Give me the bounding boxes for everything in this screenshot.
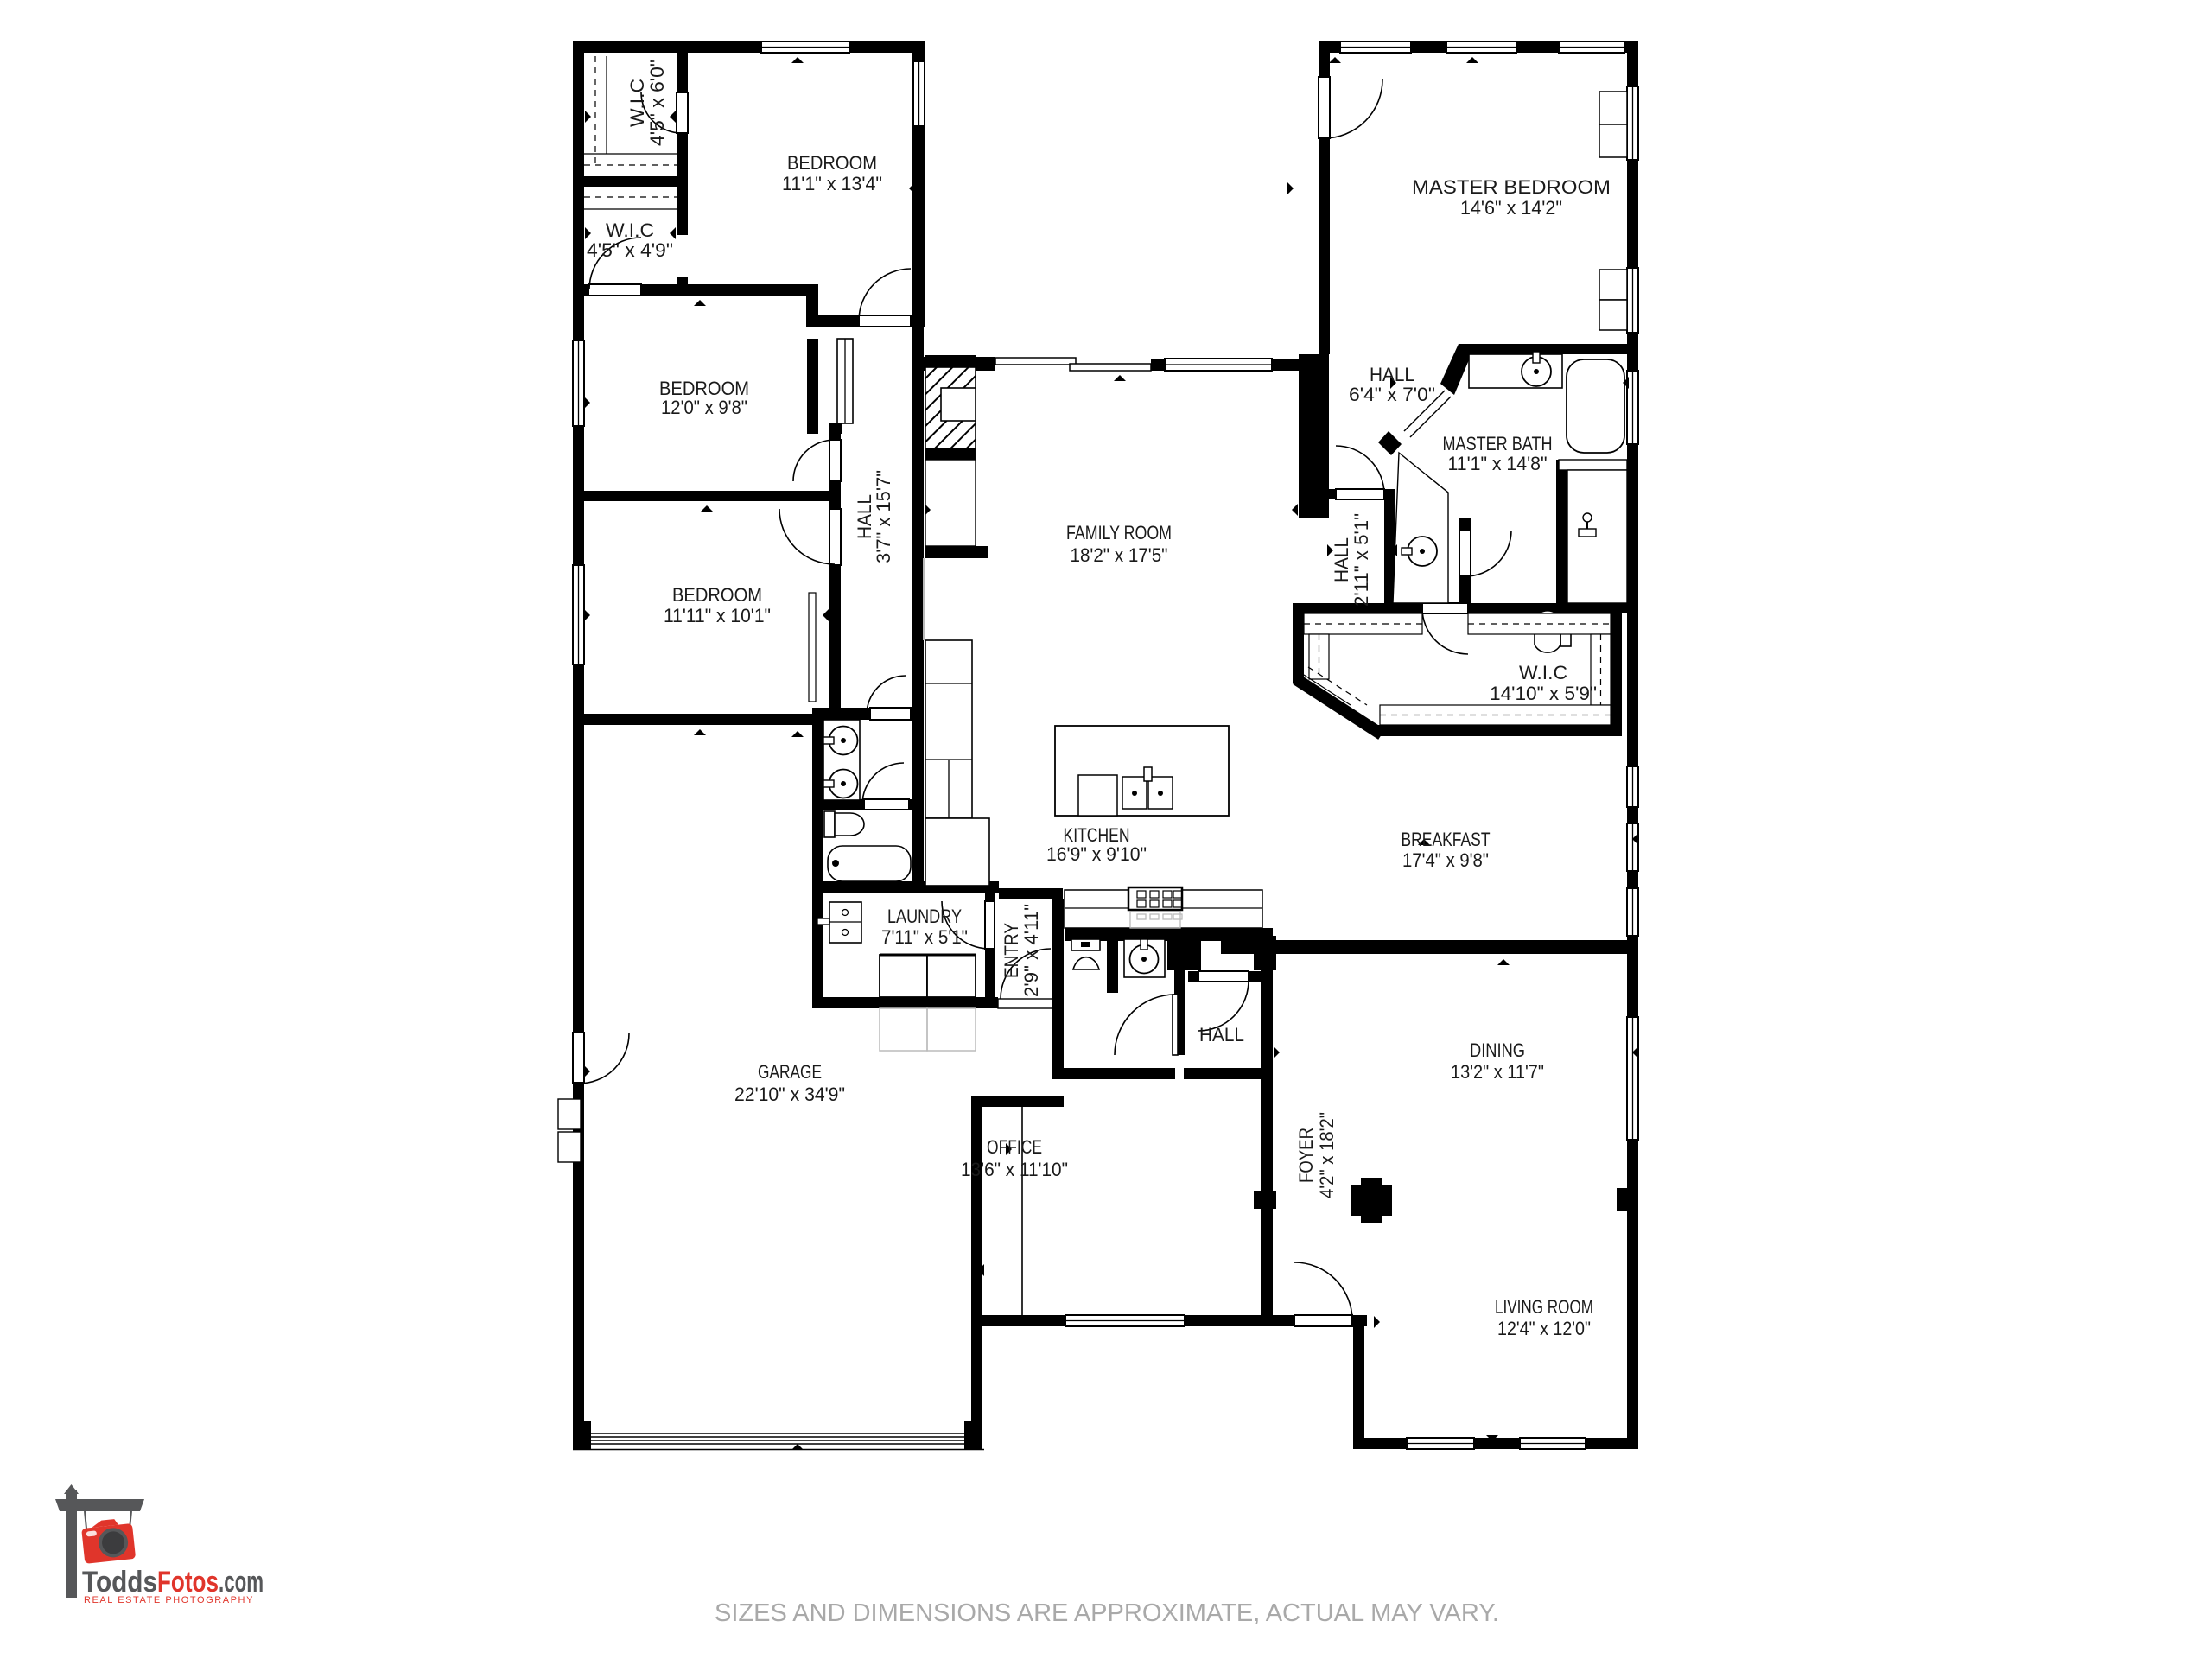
svg-text:ENTRY: ENTRY: [1001, 923, 1022, 978]
svg-text:BEDROOM: BEDROOM: [787, 152, 877, 174]
svg-text:11'1" x 14'8": 11'1" x 14'8": [1448, 453, 1548, 474]
svg-text:SIZES AND DIMENSIONS ARE APPRO: SIZES AND DIMENSIONS ARE APPROXIMATE, AC…: [715, 1599, 1499, 1627]
svg-text:W.I.C: W.I.C: [606, 219, 654, 241]
svg-text:14'10" x 5'9": 14'10" x 5'9": [1490, 683, 1597, 704]
svg-text:18'2" x 17'5": 18'2" x 17'5": [1071, 544, 1168, 566]
svg-text:FOYER: FOYER: [1295, 1128, 1317, 1183]
svg-text:HALL: HALL: [1331, 537, 1352, 582]
svg-text:22'10" x 34'9": 22'10" x 34'9": [734, 1084, 845, 1105]
svg-text:LIVING ROOM: LIVING ROOM: [1495, 1296, 1593, 1318]
svg-text:Fotos: Fotos: [157, 1566, 219, 1599]
svg-text:LAUNDRY: LAUNDRY: [887, 906, 962, 927]
svg-text:REAL ESTATE PHOTOGRAPHY: REAL ESTATE PHOTOGRAPHY: [84, 1595, 257, 1605]
svg-text:2'11" x 5'1": 2'11" x 5'1": [1351, 513, 1372, 607]
svg-text:Todds: Todds: [82, 1566, 157, 1599]
svg-text:2'9" x 4'11": 2'9" x 4'11": [1020, 904, 1042, 997]
svg-text:4'5" x 6'0": 4'5" x 6'0": [646, 60, 668, 146]
svg-text:7'11" x 5'1": 7'11" x 5'1": [881, 926, 968, 948]
svg-text:GARAGE: GARAGE: [758, 1061, 822, 1083]
svg-text:11'11" x 10'1": 11'11" x 10'1": [664, 605, 771, 626]
svg-text:BEDROOM: BEDROOM: [672, 584, 762, 606]
svg-text:4'5" x 4'9": 4'5" x 4'9": [587, 239, 673, 261]
svg-text:11'1" x 13'4": 11'1" x 13'4": [782, 173, 882, 194]
svg-text:16'9" x 9'10": 16'9" x 9'10": [1046, 843, 1147, 865]
svg-text:MASTER BATH: MASTER BATH: [1443, 433, 1553, 454]
svg-text:3'7" x 15'7": 3'7" x 15'7": [873, 470, 894, 563]
svg-text:13'6" x 11'10": 13'6" x 11'10": [961, 1159, 1068, 1180]
svg-text:12'0" x 9'8": 12'0" x 9'8": [661, 397, 747, 418]
svg-text:6'4" x 7'0": 6'4" x 7'0": [1349, 384, 1435, 405]
svg-text:W.I.C: W.I.C: [1519, 662, 1567, 683]
svg-text:W.I.C: W.I.C: [626, 79, 648, 127]
svg-text:OFFICE: OFFICE: [987, 1136, 1042, 1158]
svg-text:DINING: DINING: [1470, 1039, 1525, 1061]
svg-text:17'4" x 9'8": 17'4" x 9'8": [1402, 849, 1489, 871]
svg-text:BREAKFAST: BREAKFAST: [1402, 829, 1491, 850]
svg-text:12'4" x 12'0": 12'4" x 12'0": [1497, 1318, 1591, 1339]
svg-text:14'6" x 14'2": 14'6" x 14'2": [1460, 197, 1562, 219]
svg-text:4'2" x 18'2": 4'2" x 18'2": [1316, 1112, 1338, 1198]
svg-text:FAMILY ROOM: FAMILY ROOM: [1066, 522, 1172, 543]
svg-text:HALL: HALL: [1199, 1024, 1244, 1046]
svg-text:MASTER BEDROOM: MASTER BEDROOM: [1412, 176, 1611, 198]
svg-text:HALL: HALL: [1370, 364, 1414, 385]
svg-text:.com: .com: [219, 1566, 264, 1599]
svg-text:13'2" x 11'7": 13'2" x 11'7": [1451, 1061, 1544, 1083]
